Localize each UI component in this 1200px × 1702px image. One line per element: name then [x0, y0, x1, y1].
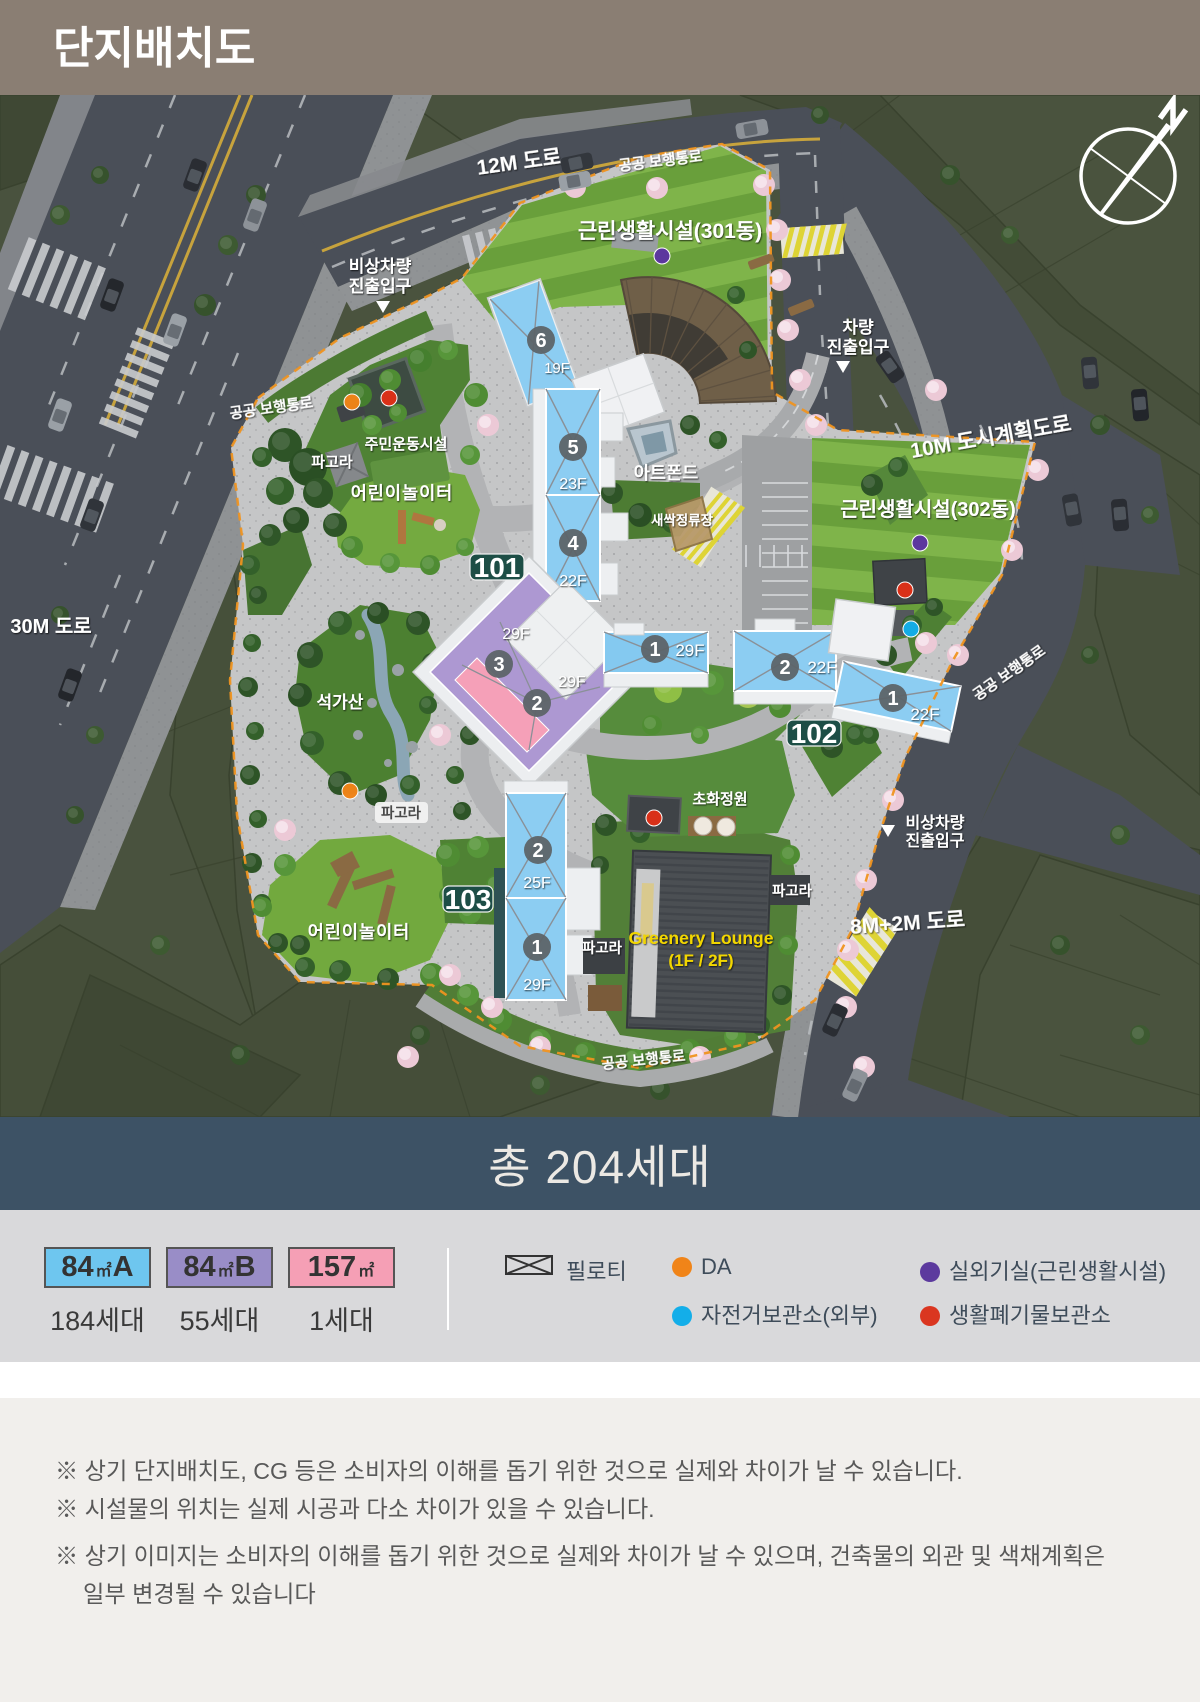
svg-text:4: 4 — [567, 533, 579, 555]
svg-text:2: 2 — [531, 693, 542, 715]
svg-text:101: 101 — [474, 552, 521, 583]
svg-text:차량: 차량 — [842, 318, 874, 337]
svg-text:22F: 22F — [807, 658, 836, 677]
svg-text:아트폰드: 아트폰드 — [634, 463, 698, 483]
svg-text:29F: 29F — [523, 977, 551, 994]
svg-text:29F: 29F — [502, 626, 530, 643]
svg-text:23F: 23F — [559, 476, 587, 493]
svg-text:25F: 25F — [523, 875, 551, 892]
svg-text:어린이놀이터: 어린이놀이터 — [308, 922, 411, 942]
svg-text:진출입구: 진출입구 — [827, 338, 890, 357]
svg-text:파고라: 파고라 — [311, 454, 353, 471]
svg-text:19F: 19F — [544, 360, 570, 377]
svg-text:29F: 29F — [558, 674, 586, 691]
svg-text:6: 6 — [535, 330, 546, 352]
svg-text:진출입구: 진출입구 — [349, 277, 412, 296]
svg-text:3: 3 — [493, 654, 504, 676]
svg-text:파고라: 파고라 — [582, 940, 623, 957]
svg-text:103: 103 — [445, 884, 492, 915]
svg-text:파고라: 파고라 — [772, 883, 813, 900]
svg-text:22F: 22F — [910, 705, 939, 724]
svg-text:1: 1 — [531, 937, 542, 959]
svg-text:22F: 22F — [559, 573, 587, 590]
svg-text:석가산: 석가산 — [317, 693, 364, 712]
svg-text:2: 2 — [532, 840, 543, 862]
svg-text:102: 102 — [791, 718, 838, 749]
svg-text:주민운동시설: 주민운동시설 — [365, 436, 448, 453]
svg-text:진출입구: 진출입구 — [906, 832, 965, 850]
svg-text:파고라: 파고라 — [381, 805, 422, 822]
svg-text:30M 도로: 30M 도로 — [10, 616, 91, 638]
svg-text:(1F / 2F): (1F / 2F) — [668, 951, 733, 970]
svg-text:Greenery Lounge: Greenery Lounge — [629, 928, 774, 948]
svg-text:초화정원: 초화정원 — [692, 790, 747, 808]
svg-text:어린이놀이터: 어린이놀이터 — [351, 483, 454, 503]
svg-text:새싹정류장: 새싹정류장 — [651, 512, 714, 528]
svg-text:근린생활시설(302동): 근린생활시설(302동) — [840, 498, 1016, 521]
svg-text:비상차량: 비상차량 — [349, 257, 412, 276]
svg-text:비상차량: 비상차량 — [906, 813, 965, 832]
svg-text:2: 2 — [779, 657, 790, 679]
svg-text:1: 1 — [887, 688, 898, 710]
svg-text:근린생활시설(301동): 근린생활시설(301동) — [578, 220, 762, 243]
svg-text:29F: 29F — [675, 641, 704, 660]
svg-text:5: 5 — [567, 437, 578, 459]
svg-text:1: 1 — [649, 639, 660, 661]
